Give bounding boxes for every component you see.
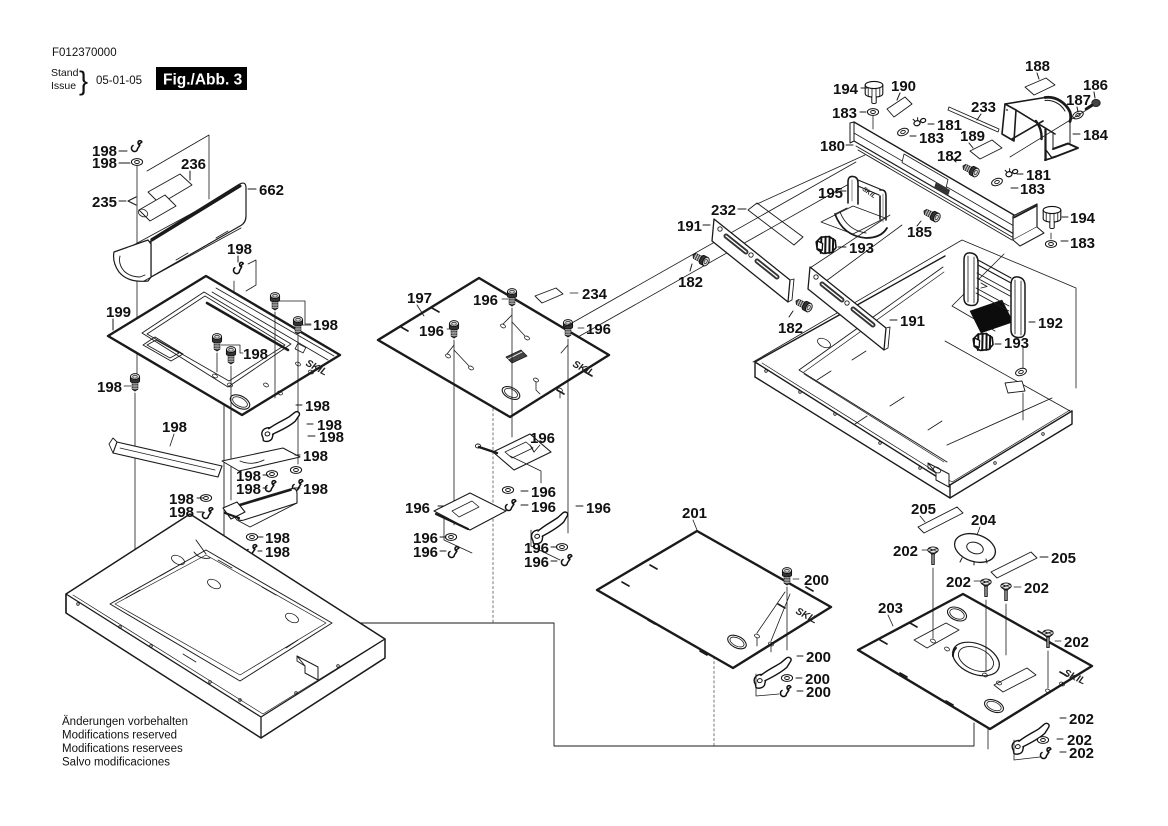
- svg-text:194: 194: [1070, 210, 1096, 227]
- svg-text:232: 232: [711, 202, 736, 219]
- svg-text:198: 198: [97, 379, 122, 396]
- svg-text:183: 183: [1020, 181, 1045, 198]
- svg-text:196: 196: [524, 554, 549, 571]
- svg-text:202: 202: [1069, 711, 1094, 728]
- svg-text:198: 198: [303, 481, 328, 498]
- svg-text:192: 192: [1038, 315, 1063, 332]
- svg-text:Issue: Issue: [51, 80, 76, 92]
- svg-text:198: 198: [236, 481, 261, 498]
- svg-text:193: 193: [1004, 335, 1029, 352]
- svg-text:SKIL: SKIL: [861, 186, 877, 200]
- svg-text:195: 195: [818, 185, 843, 202]
- svg-text:198: 198: [227, 241, 252, 258]
- svg-text:188: 188: [1025, 58, 1050, 75]
- svg-text:198: 198: [319, 429, 344, 446]
- svg-text:196: 196: [586, 321, 611, 338]
- svg-text:196: 196: [586, 500, 611, 517]
- svg-text:198: 198: [265, 544, 290, 561]
- svg-text:191: 191: [900, 313, 925, 330]
- svg-text:182: 182: [778, 320, 803, 337]
- svg-text:235: 235: [92, 194, 117, 211]
- svg-text:196: 196: [531, 499, 556, 516]
- svg-text:202: 202: [1069, 745, 1094, 762]
- svg-text:200: 200: [804, 572, 829, 589]
- svg-text:182: 182: [678, 274, 703, 291]
- svg-text:202: 202: [1024, 580, 1049, 597]
- svg-text:F012370000: F012370000: [52, 47, 117, 59]
- svg-text:662: 662: [259, 182, 284, 199]
- svg-text:198: 198: [243, 346, 268, 363]
- svg-text:205: 205: [911, 501, 936, 518]
- svg-text:236: 236: [181, 156, 206, 173]
- svg-text:202: 202: [1064, 634, 1089, 651]
- svg-text:183: 183: [1070, 235, 1095, 252]
- svg-text:196: 196: [419, 323, 444, 340]
- svg-text:196: 196: [530, 430, 555, 447]
- svg-text:201: 201: [682, 505, 707, 522]
- svg-text:Fig./Abb. 3: Fig./Abb. 3: [163, 72, 243, 89]
- svg-text:204: 204: [971, 512, 997, 529]
- svg-text:Modifications reserved: Modifications reserved: [62, 730, 177, 742]
- svg-text:191: 191: [677, 218, 702, 235]
- svg-text:202: 202: [946, 574, 971, 591]
- svg-text:183: 183: [919, 130, 944, 147]
- svg-text:199: 199: [106, 304, 131, 321]
- svg-text:184: 184: [1083, 127, 1109, 144]
- svg-text:193: 193: [849, 240, 874, 257]
- svg-text:Modifications reservees: Modifications reservees: [62, 743, 183, 755]
- svg-text:185: 185: [907, 224, 932, 241]
- svg-text:202: 202: [893, 543, 918, 560]
- svg-text:180: 180: [820, 138, 845, 155]
- svg-text:198: 198: [162, 419, 187, 436]
- svg-text:205: 205: [1051, 550, 1076, 567]
- svg-text:190: 190: [891, 78, 916, 95]
- svg-text:203: 203: [878, 600, 903, 617]
- svg-text:198: 198: [313, 317, 338, 334]
- svg-text:198: 198: [303, 448, 328, 465]
- svg-text:194: 194: [833, 81, 859, 98]
- svg-text:233: 233: [971, 99, 996, 116]
- svg-text:200: 200: [806, 684, 831, 701]
- svg-text:Stand: Stand: [51, 67, 79, 79]
- svg-text:05-01-05: 05-01-05: [96, 75, 142, 87]
- svg-text:200: 200: [806, 649, 831, 666]
- svg-text:198: 198: [169, 504, 194, 521]
- svg-text:234: 234: [582, 286, 608, 303]
- svg-text:189: 189: [960, 128, 985, 145]
- svg-text:197: 197: [407, 290, 432, 307]
- svg-text:198: 198: [305, 398, 330, 415]
- svg-text:Änderungen vorbehalten: Änderungen vorbehalten: [62, 716, 188, 728]
- svg-text:198: 198: [92, 155, 117, 172]
- svg-text:183: 183: [832, 105, 857, 122]
- svg-text:Salvo modificaciones: Salvo modificaciones: [62, 757, 170, 769]
- svg-text:196: 196: [473, 292, 498, 309]
- svg-text:}: }: [79, 66, 88, 96]
- svg-text:196: 196: [413, 544, 438, 561]
- svg-text:187: 187: [1066, 92, 1091, 109]
- svg-text:196: 196: [405, 500, 430, 517]
- svg-text:182: 182: [937, 148, 962, 165]
